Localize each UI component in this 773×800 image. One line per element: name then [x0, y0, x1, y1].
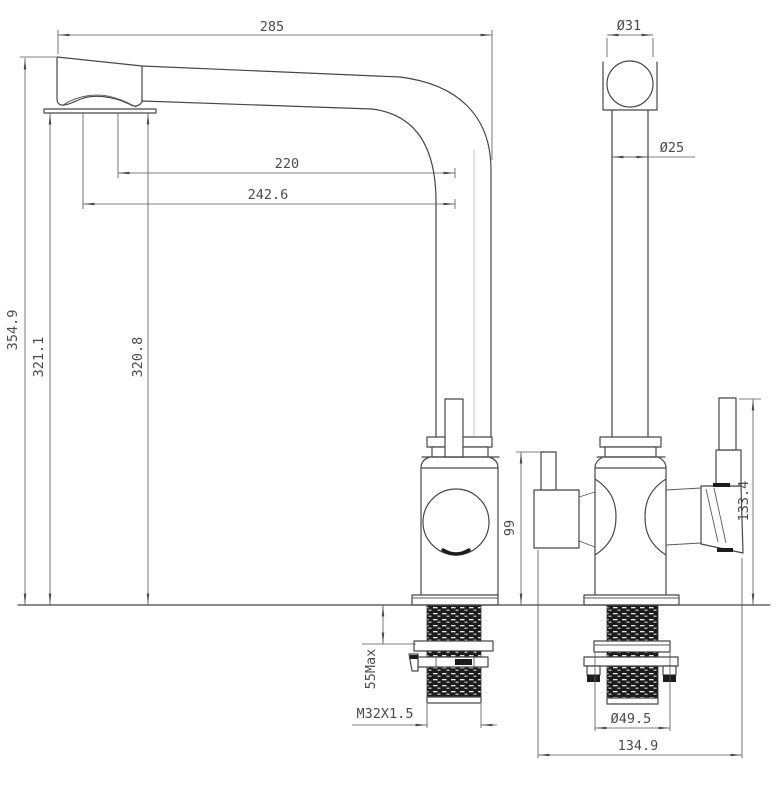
left-lever: [541, 452, 556, 490]
shank-end: [427, 697, 481, 703]
spout-head: [57, 57, 142, 106]
dim-label-deck-thickness: 55Max: [363, 649, 379, 690]
dim-label-reach-center: 220: [275, 156, 299, 172]
dim-label-height-underside-front: 321.1: [31, 337, 47, 378]
wing-bolt-left-tip: [587, 675, 600, 682]
right-port-mark-top: [713, 483, 730, 487]
collar-flare-left: [421, 457, 430, 468]
spout-tube-inner: [142, 101, 436, 437]
dim-label-elbow-diameter: Ø31: [617, 18, 641, 34]
dim-label-side-lever-height: 133.4: [736, 481, 752, 522]
right-lever: [719, 398, 736, 450]
dim-label-base-span: 134.9: [618, 738, 659, 754]
body-waist-right: [645, 479, 666, 555]
dim-side-lever-height: 133.4: [736, 399, 761, 605]
dim-riser-diameter: Ø25: [612, 140, 695, 157]
side-collar-step: [605, 447, 656, 457]
dim-label-filtered-lever-height: 99: [502, 520, 518, 536]
drawing-page: 285 220 242.6 354.9 321.1 320.8: [0, 0, 773, 800]
dim-height-underside-front: 321.1: [31, 113, 50, 605]
dim-elbow-diameter: Ø31: [607, 18, 653, 57]
collar-flare-right: [489, 457, 498, 468]
wing-bolt-right-tip: [663, 675, 676, 682]
dim-reach-outer: 242.6: [83, 113, 455, 209]
dim-reach-center: 220: [118, 113, 455, 178]
dim-label-reach-outer: 242.6: [248, 187, 289, 203]
body-medallion: [423, 489, 489, 555]
side-shank-thread-upper: [607, 605, 658, 641]
base-plate: [412, 595, 498, 605]
side-collar-flare-left: [595, 457, 603, 468]
side-view: [534, 61, 743, 704]
side-base-plate: [584, 595, 679, 605]
dim-deck-thickness: 55Max: [362, 605, 416, 689]
spout-tube-outer: [142, 66, 491, 437]
locknut-tab-mark: [410, 655, 418, 659]
right-port-mark-bottom: [717, 548, 733, 552]
dim-height-underside-inner: 320.8: [130, 113, 148, 605]
wing-bolt-left: [587, 666, 600, 675]
dim-label-thread-spec: M32X1.5: [357, 706, 414, 722]
side-collar-rim: [600, 437, 661, 447]
side-shank-end: [607, 698, 658, 704]
riser-tube: [612, 110, 648, 437]
front-lever: [445, 399, 463, 457]
wing-bolt-right: [663, 666, 676, 675]
front-view: [44, 57, 499, 703]
shank-thread-upper: [427, 605, 481, 641]
dim-label-overall-reach: 285: [260, 19, 284, 35]
left-port-neck: [579, 492, 595, 547]
wing-bar: [584, 657, 678, 666]
locknut: [418, 657, 488, 667]
dim-label-height-underside-inner: 320.8: [130, 337, 146, 378]
right-lever-ferrule: [716, 450, 741, 486]
technical-drawing: 285 220 242.6 354.9 321.1 320.8: [0, 0, 773, 800]
side-collar-flare-right: [658, 457, 666, 468]
body-waist-left: [595, 479, 616, 555]
locknut-dark-segment: [455, 659, 472, 665]
aerator-plate: [44, 109, 156, 113]
dim-height-overall: 354.9: [5, 57, 56, 605]
dim-label-riser-diameter: Ø25: [660, 140, 684, 156]
side-mounting-washer: [594, 641, 670, 652]
mounting-washer: [414, 641, 493, 651]
elbow-ball: [607, 61, 653, 107]
right-port-neck: [666, 488, 701, 545]
left-port-body: [534, 490, 579, 548]
dim-label-flange-diameter: Ø49.5: [611, 711, 652, 727]
dim-thread-spec: M32X1.5: [352, 704, 497, 728]
dim-label-height-overall: 354.9: [5, 310, 21, 351]
